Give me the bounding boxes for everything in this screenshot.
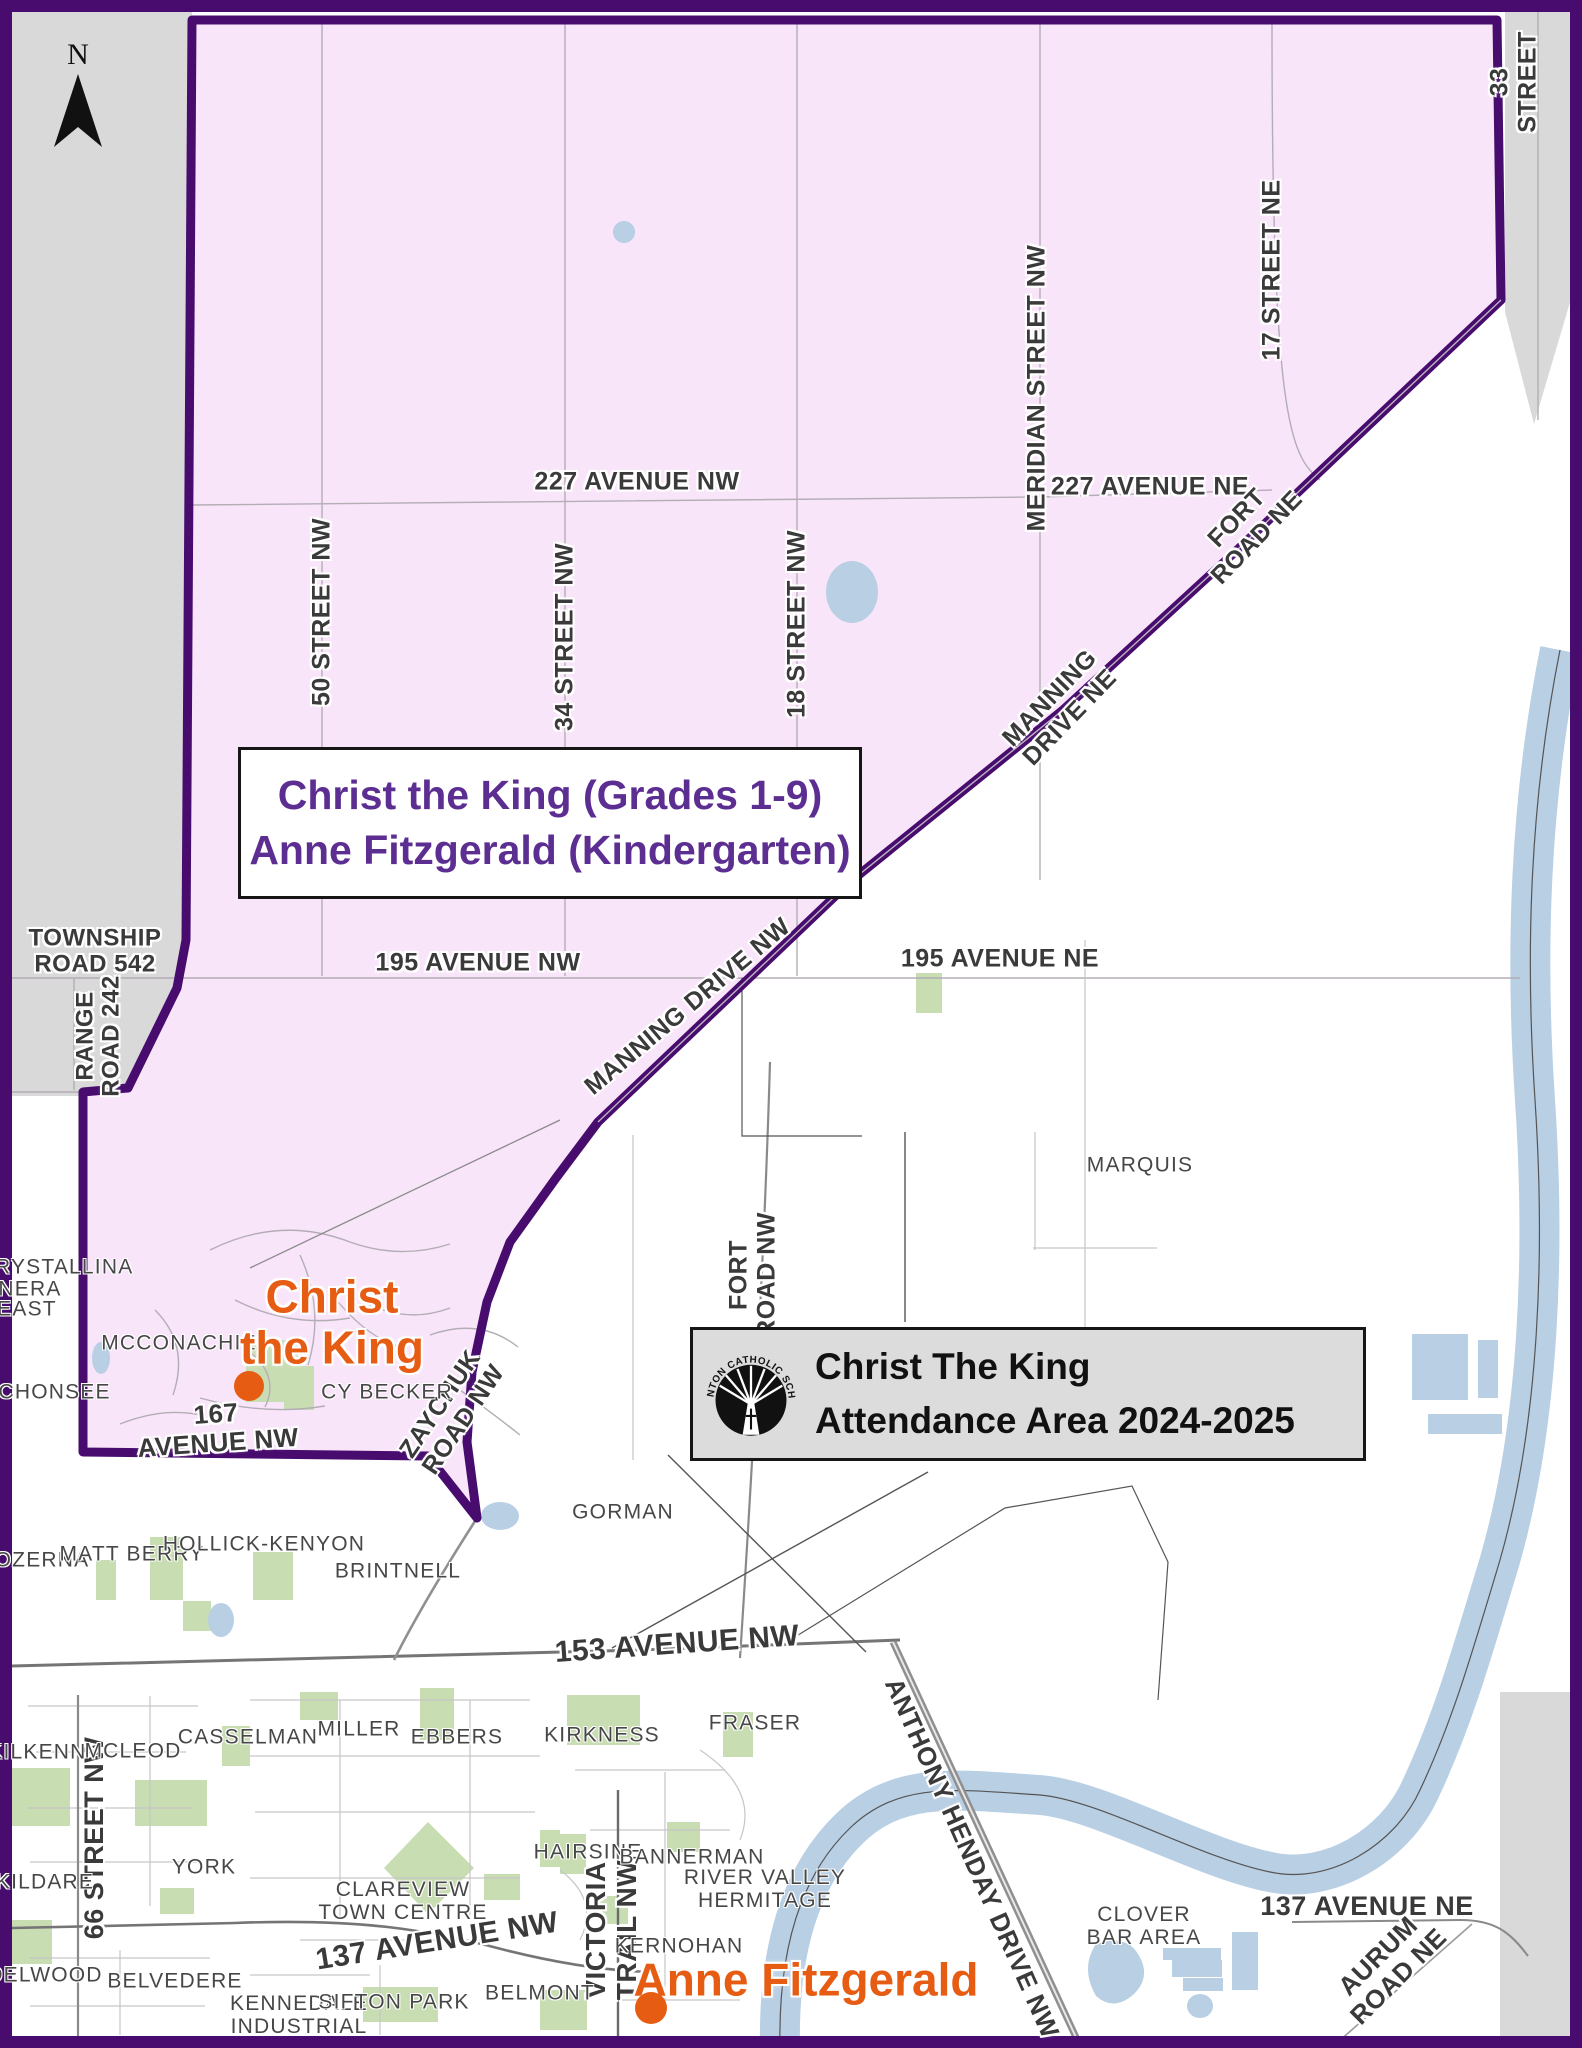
north-label: N	[38, 38, 118, 72]
outside-city-region-nw	[6, 6, 192, 1096]
north-arrow-icon	[38, 72, 118, 162]
north-arrow: N	[38, 38, 118, 163]
map-title-line2: Attendance Area 2024-2025	[815, 1394, 1295, 1448]
region-label-box: Christ the King (Grades 1-9) Anne Fitzge…	[238, 747, 862, 899]
region-label-line1: Christ the King (Grades 1-9)	[278, 771, 822, 820]
school-marker-dot	[234, 1371, 264, 1401]
edmonton-catholic-schools-logo: EDMONTON CATHOLIC SCHOOLS	[703, 1339, 799, 1449]
region-label-line2: Anne Fitzgerald (Kindergarten)	[249, 826, 850, 875]
school-marker-dot	[635, 1992, 667, 2024]
map-title-box: EDMONTON CATHOLIC SCHOOLS Christ The Kin…	[690, 1327, 1366, 1461]
attendance-area-map: N 227 AVENUE NW227 AVENUE NE50 STREET NW…	[0, 0, 1582, 2048]
outside-city-region-se	[1500, 1692, 1576, 2042]
map-canvas	[0, 0, 1582, 2048]
map-title-line1: Christ The King	[815, 1340, 1295, 1394]
